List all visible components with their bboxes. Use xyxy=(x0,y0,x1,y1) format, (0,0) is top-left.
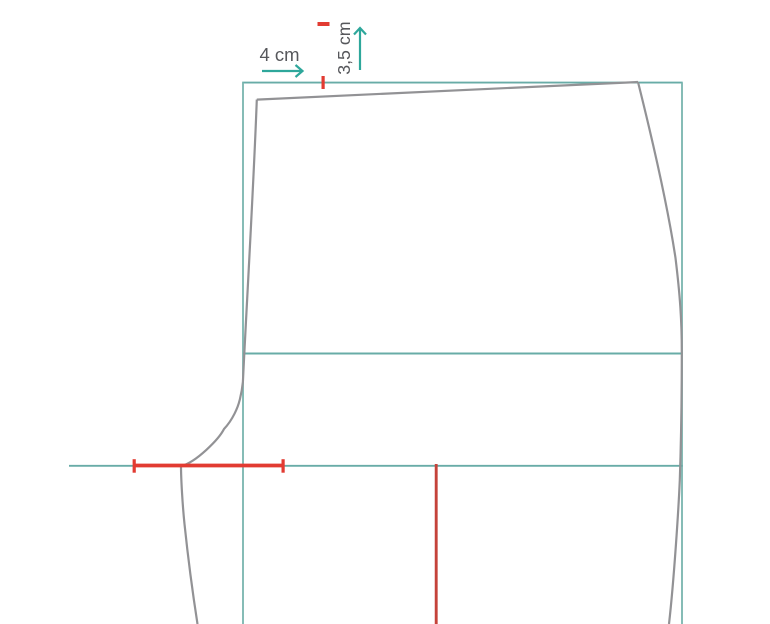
svg-text:3,5 cm: 3,5 cm xyxy=(334,21,354,74)
svg-text:4 cm: 4 cm xyxy=(260,44,300,65)
